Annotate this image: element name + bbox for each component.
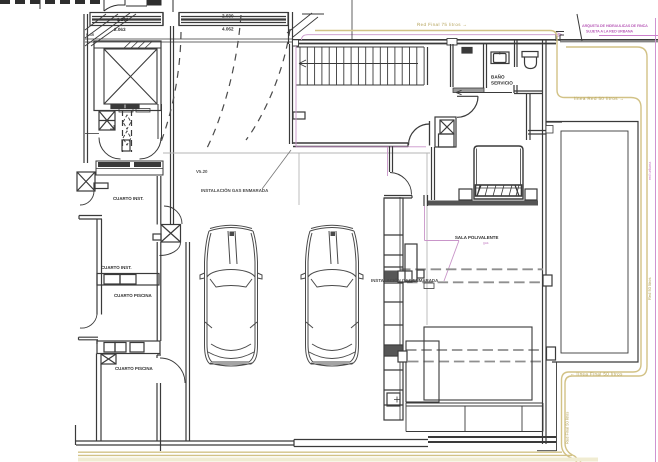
svg-text:SALA POLIVALENTE: SALA POLIVALENTE [455, 235, 498, 240]
svg-text:2.063: 2.063 [114, 27, 126, 32]
svg-text:gas: gas [483, 241, 489, 245]
svg-text:INSTALACIÓN GAS ENMARADA: INSTALACIÓN GAS ENMARADA [371, 278, 439, 283]
svg-text:1.206: 1.206 [117, 17, 129, 22]
svg-text:CUARTO INST.: CUARTO INST. [113, 196, 144, 201]
svg-text:red urbana: red urbana [648, 161, 652, 180]
svg-text:línea Red 50 litros →: línea Red 50 litros → [574, 96, 624, 101]
svg-text:ARQUETA DE HIDRAULICAS DE FIN: ARQUETA DE HIDRAULICAS DE FINCA [582, 24, 648, 28]
svg-text:CUARTO INST.: CUARTO INST. [101, 265, 132, 270]
svg-text:4.062: 4.062 [222, 27, 234, 32]
svg-text:SUJETA A LA RED URBANA: SUJETA A LA RED URBANA [586, 30, 633, 34]
svg-text:CUARTO PISCINA: CUARTO PISCINA [115, 366, 154, 371]
svg-text:Red 50 litros: Red 50 litros [647, 278, 652, 300]
svg-text:Red Final 50 litros: Red Final 50 litros [565, 412, 570, 444]
svg-text:BAÑO: BAÑO [491, 74, 505, 80]
svg-text:SERVICIO: SERVICIO [491, 81, 513, 86]
svg-text:CUARTO PISCINA: CUARTO PISCINA [114, 293, 153, 298]
svg-text:V5.20: V5.20 [196, 169, 208, 174]
svg-text:2.030: 2.030 [222, 14, 234, 19]
svg-text:Red Final 75 litros →: Red Final 75 litros → [417, 22, 467, 27]
svg-text:INSTALACIÓN GAS ENMARADA: INSTALACIÓN GAS ENMARADA [201, 188, 269, 193]
svg-text:← línea Final 50 litros: ← línea Final 50 litros [570, 372, 623, 377]
